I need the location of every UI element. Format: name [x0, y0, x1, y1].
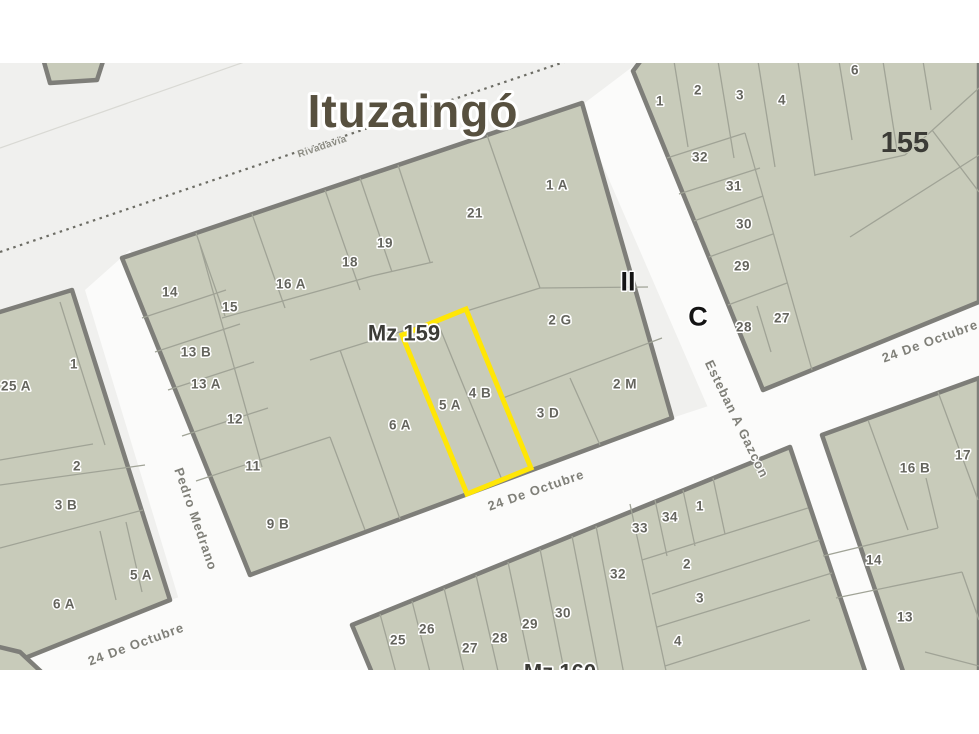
parcel-label: 3	[696, 591, 704, 606]
parcel-label: 4	[674, 634, 682, 649]
cadastral-map-svg[interactable]: 1 A 21 19 18 16 A 14 15 13 B 13 A 12 11 …	[0, 0, 979, 734]
block-name-mz160: Mz 160	[524, 660, 596, 685]
parcel-label: 13	[897, 610, 913, 625]
parcel-label: 32	[692, 150, 708, 165]
city-title: Ituzaingó	[308, 85, 519, 137]
parcel-label: 17	[955, 448, 971, 463]
parcel-label: 30	[736, 217, 752, 232]
parcel-label-selected: 5 A	[439, 398, 461, 413]
block-fragment-northwest[interactable]	[42, 55, 105, 83]
parcel-label: 25 A	[1, 379, 31, 394]
parcel-label: 1	[70, 357, 78, 372]
parcel-label: 2 G	[548, 313, 571, 328]
parcel-label: 9 B	[267, 517, 290, 532]
parcel-label: 6	[851, 63, 859, 78]
parcel-label: 28	[492, 631, 508, 646]
parcel-label: 19	[377, 236, 393, 251]
parcel-label: 29	[734, 259, 750, 274]
parcel-label: 27	[774, 311, 790, 326]
parcel-label: 1 A	[546, 178, 568, 193]
parcel-label: 14	[162, 285, 178, 300]
parcel-label: 25	[390, 633, 406, 648]
parcel-label: 16 B	[900, 461, 931, 476]
zone-marker-c: C	[688, 301, 708, 331]
parcel-label: 13 A	[191, 377, 221, 392]
parcel-label: 1	[696, 499, 704, 514]
block-name-mz159: Mz 159	[368, 321, 440, 346]
parcel-label: 18	[342, 255, 358, 270]
parcel-label: 12	[227, 412, 243, 427]
parcel-label: 27	[462, 641, 478, 656]
parcel-label: 3 D	[537, 406, 560, 421]
parcel-label: 33	[632, 521, 648, 536]
parcel-label: 6 A	[389, 418, 411, 433]
parcel-label: 6 A	[53, 597, 75, 612]
parcel-label: 14	[866, 553, 882, 568]
parcel-label: 2	[683, 557, 691, 572]
parcel-label: 21	[467, 206, 483, 221]
parcel-label: 13 B	[181, 345, 212, 360]
parcel-label: 3	[736, 88, 744, 103]
map-viewport[interactable]: 1 A 21 19 18 16 A 14 15 13 B 13 A 12 11 …	[0, 0, 979, 734]
parcel-label: 29	[522, 617, 538, 632]
parcel-label: 32	[610, 567, 626, 582]
parcel-label: 34	[662, 510, 678, 525]
parcel-label: 4	[778, 93, 786, 108]
parcel-label: 11	[245, 459, 260, 474]
parcel-label: 16 A	[276, 277, 306, 292]
parcel-label: 1	[656, 94, 664, 109]
parcel-label: 2	[694, 83, 702, 98]
parcel-label: 3 B	[55, 498, 78, 513]
parcel-label: 15	[222, 300, 238, 315]
parcel-label-selected: 4 B	[469, 386, 492, 401]
parcel-label: 2	[73, 459, 81, 474]
parcel-label: 28	[736, 320, 752, 335]
parcel-label: 2 M	[613, 377, 637, 392]
zone-marker-ii: II	[620, 266, 635, 296]
parcel-label: 31	[726, 179, 742, 194]
block-name-155: 155	[881, 127, 929, 159]
parcel-label: 5 A	[130, 568, 152, 583]
parcel-label: 30	[555, 606, 571, 621]
parcel-label: 26	[419, 622, 435, 637]
